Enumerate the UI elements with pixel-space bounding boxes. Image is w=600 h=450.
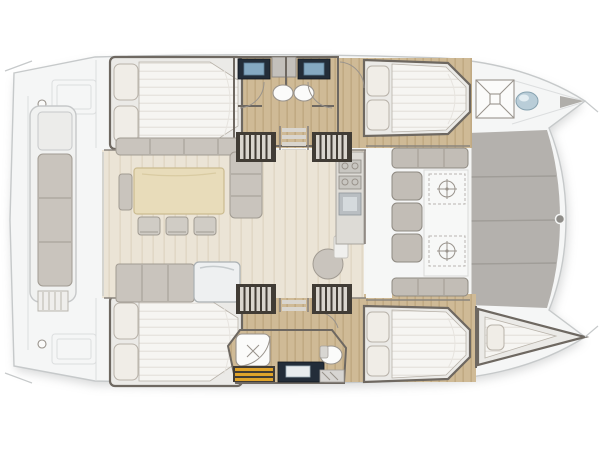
port-aft-cabin-bed (110, 57, 242, 149)
forward-bench (392, 148, 468, 168)
stairs-starboard-aft (236, 284, 276, 314)
pillow (367, 312, 389, 342)
wash-basin (304, 63, 324, 75)
pillow (487, 325, 504, 350)
foredeck (468, 130, 565, 308)
pillow (114, 64, 138, 100)
head-cabinet (272, 57, 296, 77)
sofa-side-seat (119, 174, 132, 210)
toilet (294, 85, 314, 101)
stairs-port-aft (236, 132, 276, 162)
shower-stall (236, 334, 270, 366)
catamaran-floorplan (0, 0, 600, 450)
pillow (367, 346, 389, 376)
pillow (114, 106, 138, 142)
aft-teak-table (38, 291, 68, 311)
aft-bench-cushion (38, 154, 72, 286)
pillow (114, 344, 138, 380)
port-forward-cabin-bed (364, 60, 470, 136)
starboard-forward-cabin-bed (364, 306, 470, 382)
wash-basin (244, 63, 264, 75)
pillow (367, 100, 389, 130)
forward-bench (392, 172, 422, 200)
aft-storage (38, 112, 72, 150)
wash-basin (286, 366, 310, 377)
teak-grating (233, 366, 275, 382)
saloon (102, 138, 366, 302)
stairs-starboard-forward (312, 284, 352, 314)
stairs-port-forward (312, 132, 352, 162)
forward-walkway (366, 150, 392, 298)
pillow (114, 303, 138, 339)
stern-fitting-starboard (38, 340, 46, 348)
bow-sink (516, 92, 538, 110)
floorplan-svg (0, 0, 600, 450)
forward-bench (392, 278, 468, 296)
forward-bench (392, 234, 422, 262)
forward-bench (392, 203, 422, 231)
toilet (273, 85, 293, 101)
sideboard (116, 262, 240, 302)
aft-cockpit (30, 106, 76, 311)
forestay-fitting (556, 215, 565, 224)
galley (336, 150, 365, 244)
head-cabinet (320, 370, 344, 382)
forward-table (424, 170, 468, 276)
starboard-head (228, 330, 346, 383)
pillow (367, 66, 389, 96)
starboard-aft-cabin-bed (110, 296, 242, 386)
